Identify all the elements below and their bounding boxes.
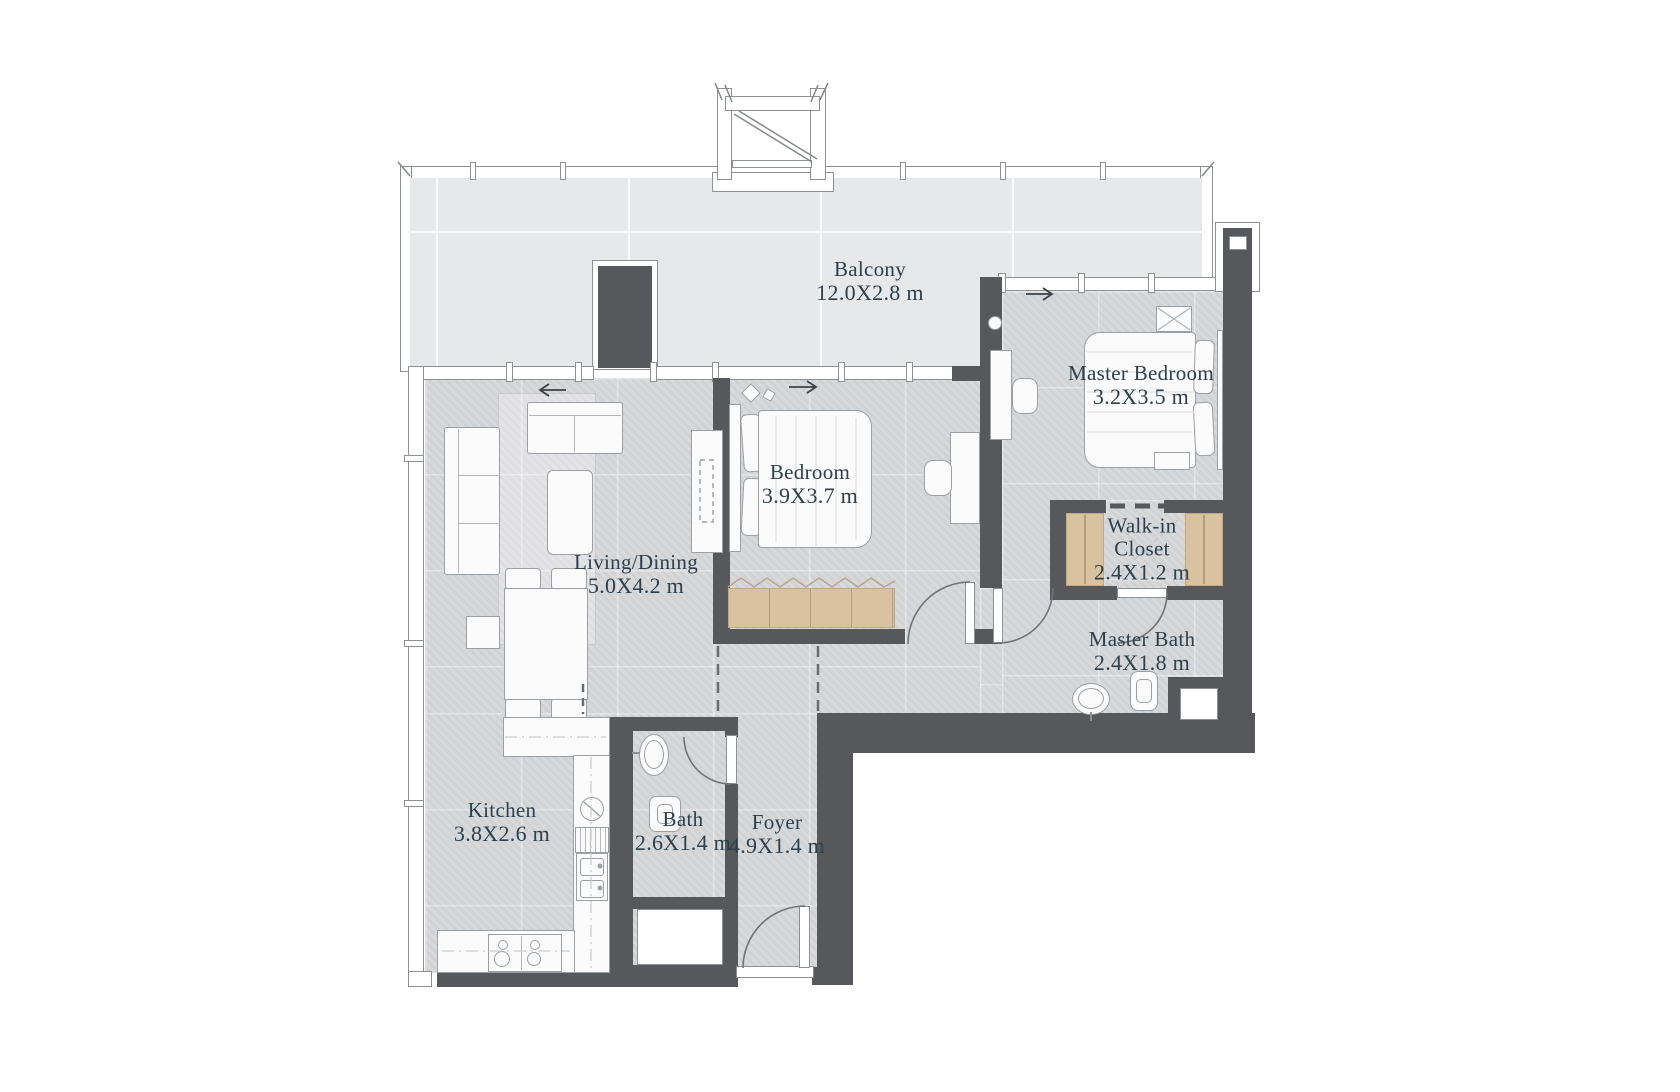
wall-closet-left <box>1050 500 1066 600</box>
bed-headboard <box>729 404 741 552</box>
wall-tick <box>1100 162 1106 180</box>
desk-chair <box>924 460 952 496</box>
dining-table <box>504 588 588 700</box>
room-name: Master Bedroom <box>1066 362 1216 385</box>
burner <box>498 940 508 950</box>
room-name: Balcony <box>816 258 924 281</box>
room-dims: 2.6X1.4 m <box>635 831 731 854</box>
sink-basin <box>580 880 604 898</box>
loveseat-seat-line <box>574 416 575 452</box>
sink-basin <box>580 858 604 876</box>
room-label-balcony: Balcony 12.0X2.8 m <box>816 258 924 304</box>
wall-tick <box>560 162 566 180</box>
desk-chair <box>1012 378 1038 414</box>
room-name: Walk-in Closet <box>1084 515 1200 561</box>
door-leaf-master-bath <box>1117 588 1167 598</box>
wall-niche <box>1180 688 1218 720</box>
wall-bath-bottom <box>633 897 738 909</box>
sofa-seat-line <box>459 523 498 524</box>
wall-kitchen-bath <box>608 717 633 973</box>
sink-basin <box>644 740 664 769</box>
room-label-bath: Bath 2.6X1.4 m <box>635 808 731 854</box>
loveseat <box>527 402 623 454</box>
bed-headboard <box>1217 330 1223 470</box>
wall-closet-top-b <box>1164 500 1223 513</box>
wall-bath-top <box>633 717 725 731</box>
wall-tick <box>1000 162 1006 180</box>
room-label-living-dining: Living/Dining 5.0X4.2 m <box>574 551 698 597</box>
loveseat-back-line <box>529 415 621 416</box>
burner <box>530 940 540 950</box>
room-dims: 3.8X2.6 m <box>454 822 550 845</box>
wall-tick <box>906 362 913 382</box>
wall-cap <box>408 971 432 987</box>
window-wall-living-a <box>408 366 594 380</box>
wall-bath-right-stub <box>725 717 738 737</box>
column <box>598 266 652 368</box>
door-leaf-master-bedroom <box>993 588 1003 643</box>
room-dims: 12.0X2.8 m <box>816 281 924 304</box>
wall-tick <box>404 455 424 462</box>
room-dims: 4.9X1.4 m <box>729 834 825 857</box>
room-name: Kitchen <box>454 799 550 822</box>
pergola-beam-top <box>725 96 820 111</box>
wall-tick <box>1148 273 1155 293</box>
wall-tick <box>575 362 582 382</box>
wall-tick <box>900 162 906 180</box>
burner <box>494 951 510 967</box>
side-table <box>466 616 500 649</box>
stove-divider <box>521 936 522 970</box>
wall-notch <box>1229 236 1247 250</box>
dining-chair <box>505 568 541 590</box>
wall-tick <box>404 640 424 647</box>
wall-tick <box>506 362 513 382</box>
balcony-floor-right <box>982 178 1202 280</box>
room-label-walk-in-closet: Walk-in Closet 2.4X1.2 m <box>1084 515 1200 584</box>
pergola-diagonal-brace <box>734 111 817 162</box>
desk <box>950 432 980 524</box>
sink-basin <box>1078 688 1104 709</box>
room-name: Bath <box>635 808 731 831</box>
wall-tick <box>650 362 657 382</box>
wall-tick <box>404 800 424 807</box>
room-dims: 3.2X3.5 m <box>1066 385 1216 408</box>
closet-opening <box>1106 500 1164 513</box>
room-label-foyer: Foyer 4.9X1.4 m <box>729 811 825 857</box>
wardrobe <box>728 588 895 628</box>
wall-bedroom-bottom <box>713 629 905 644</box>
room-label-kitchen: Kitchen 3.8X2.6 m <box>454 799 550 845</box>
service-shaft <box>637 909 723 965</box>
nightstand <box>1154 452 1190 470</box>
sofa-seat-line <box>459 475 498 476</box>
room-dims: 5.0X4.2 m <box>574 574 698 597</box>
appliance <box>575 827 609 853</box>
wall-exterior-right <box>1223 228 1252 753</box>
sofa <box>444 427 500 575</box>
wall-masterbath-top-b <box>1167 586 1223 600</box>
wall-tick <box>470 162 476 180</box>
burner <box>527 952 541 966</box>
wall-masterbath-top-a <box>1066 586 1117 600</box>
closet-rod <box>1203 515 1205 584</box>
room-name: Foyer <box>729 811 825 834</box>
kitchen-counter-top <box>503 717 610 757</box>
wall-segment <box>812 967 853 985</box>
wall-tick <box>838 362 845 382</box>
wall-sconce <box>988 316 1002 330</box>
wall-segment <box>723 903 738 975</box>
room-dims: 2.4X1.2 m <box>1084 561 1200 584</box>
tv-console <box>691 430 723 553</box>
room-label-master-bedroom: Master Bedroom 3.2X3.5 m <box>1066 362 1216 408</box>
decor-plant <box>1156 306 1192 332</box>
pillow <box>1193 402 1216 457</box>
room-name: Bedroom <box>762 461 858 484</box>
room-dims: 3.9X3.7 m <box>762 484 858 507</box>
door-leaf-entry <box>799 906 810 968</box>
door-leaf-bath <box>726 735 737 784</box>
room-name: Master Bath <box>1089 628 1196 651</box>
floor-plan: Balcony 12.0X2.8 m Living/Dining 5.0X4.2… <box>0 0 1680 1092</box>
coffee-table <box>547 470 593 555</box>
room-label-bedroom: Bedroom 3.9X3.7 m <box>762 461 858 507</box>
room-label-master-bath: Master Bath 2.4X1.8 m <box>1089 628 1196 674</box>
wall-exterior-bottom <box>437 973 738 987</box>
cooktop-ring <box>580 797 604 821</box>
room-name: Living/Dining <box>574 551 698 574</box>
window-wall-master <box>1002 277 1223 291</box>
desk <box>990 350 1012 440</box>
sofa-back-line <box>458 429 459 573</box>
door-leaf-bedroom <box>965 582 975 644</box>
room-dims: 2.4X1.8 m <box>1089 651 1196 674</box>
pergola-beam-bottom <box>732 160 812 168</box>
wall-tick <box>1078 273 1085 293</box>
toilet-bowl <box>1136 679 1152 703</box>
